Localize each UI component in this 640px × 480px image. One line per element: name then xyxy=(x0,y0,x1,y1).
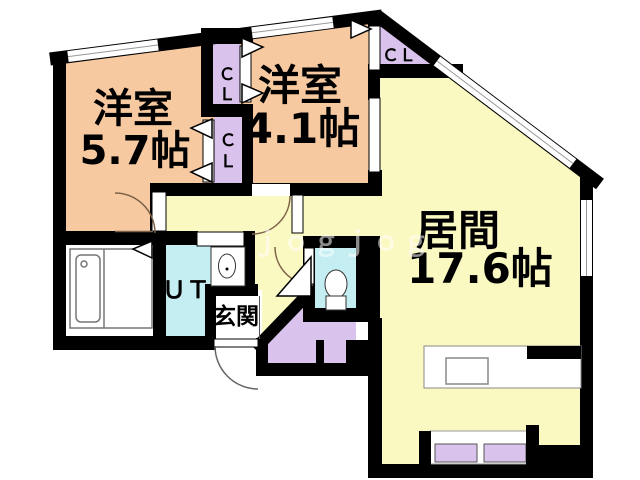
wall-bottom-left xyxy=(53,336,216,350)
closet-lower-label-c: Ｃ xyxy=(220,131,237,151)
closet-lower-label-l: Ｌ xyxy=(220,152,237,172)
utility-door-opening xyxy=(197,232,244,246)
floor-plan-canvas: 洋室 5.7帖 洋室 4.1帖 居間 17.6帖 Ｃ Ｌ Ｃ Ｌ ＣＬ ＵＴ 玄… xyxy=(0,0,640,480)
entrance-label: 玄関 xyxy=(213,303,259,330)
utility-label: ＵＴ xyxy=(162,276,210,304)
storage-wall-right xyxy=(539,445,581,465)
bedroom2-living-opening xyxy=(369,98,380,172)
wall-living-west xyxy=(368,318,382,478)
bedroom1-size-label: 5.7帖 xyxy=(80,128,191,174)
bedroom2-name-label: 洋室 xyxy=(258,61,342,110)
toilet-tank-icon xyxy=(326,296,346,310)
wall-left xyxy=(53,52,66,350)
wall-hall-leg-divider xyxy=(316,340,324,366)
storage-box-left xyxy=(435,444,477,462)
entrance-door-leaf xyxy=(214,339,258,347)
bedroom2-door-opening xyxy=(252,184,290,196)
closet-corner-label: ＣＬ xyxy=(382,46,416,66)
closet-upper-label-l: Ｌ xyxy=(219,85,236,105)
wall-bottom-living xyxy=(368,464,593,478)
bath-drain-icon xyxy=(81,261,87,267)
wall-bedroom2-east-c xyxy=(368,170,382,196)
storage-box-right xyxy=(484,444,526,462)
closet-corner-opening xyxy=(369,26,380,70)
wall-bath-north xyxy=(53,231,198,245)
kitchen-counter-wall xyxy=(527,346,581,359)
closet-upper-label-c: Ｃ xyxy=(219,65,236,85)
wall-closet-left xyxy=(201,34,213,108)
washbasin-drain-icon xyxy=(226,268,229,271)
kitchen-sink xyxy=(446,358,488,384)
bathtub xyxy=(76,255,100,322)
toilet-bowl-icon xyxy=(325,270,347,298)
storage-post-right xyxy=(526,425,539,465)
wall-hall-east-block xyxy=(346,340,368,376)
bedroom2-size-label: 4.1帖 xyxy=(244,104,360,153)
storage-post-left xyxy=(419,431,431,465)
bedroom1-name-label: 洋室 xyxy=(93,86,173,132)
watermark-text: ｊｏｇｊｏｇ xyxy=(253,227,433,257)
floor-plan: 洋室 5.7帖 洋室 4.1帖 居間 17.6帖 Ｃ Ｌ Ｃ Ｌ ＣＬ ＵＴ 玄… xyxy=(0,0,640,480)
washbasin-bowl-icon xyxy=(219,254,236,278)
